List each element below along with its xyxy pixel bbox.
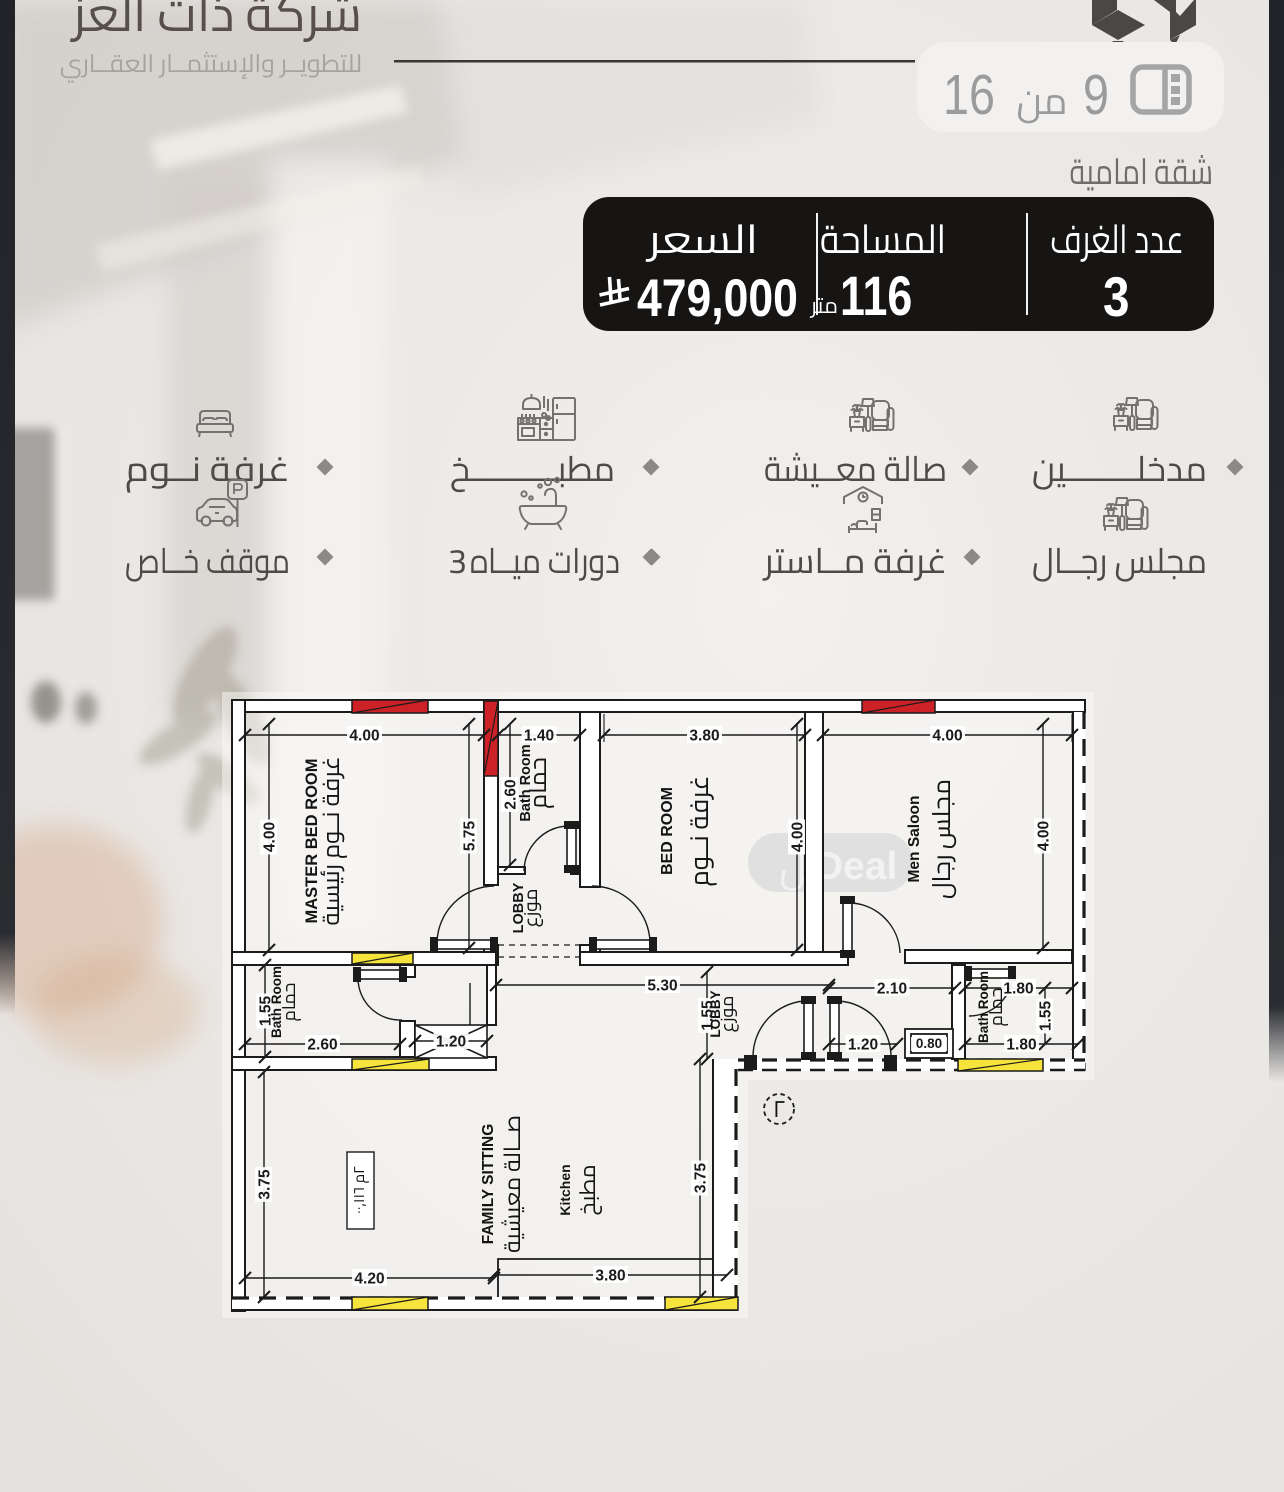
svg-text:3.80: 3.80 [689,728,719,745]
svg-text:4.00: 4.00 [932,728,962,745]
svg-text:2.10: 2.10 [877,981,907,998]
svg-text:BED ROOM: BED ROOM [659,787,676,875]
svg-text:LOBBY: LOBBY [511,882,527,933]
svg-text:1.80: 1.80 [1003,981,1033,998]
svg-text:1.20: 1.20 [848,1037,878,1054]
svg-text:MASTER BED ROOM: MASTER BED ROOM [303,759,321,924]
svg-text:5.30: 5.30 [647,978,677,995]
svg-text:1.20: 1.20 [436,1034,466,1051]
svg-text:4.20: 4.20 [354,1271,384,1288]
svg-text:Bath Room: Bath Room [269,966,284,1038]
svg-text:2.60: 2.60 [503,779,520,809]
svg-text:1.80: 1.80 [1006,1037,1036,1054]
svg-text:3.80: 3.80 [595,1268,625,1285]
svg-text:Kitchen: Kitchen [557,1164,573,1215]
svg-text:2.60: 2.60 [307,1037,337,1054]
svg-text:FAMILY SITTING: FAMILY SITTING [480,1124,497,1245]
svg-text:5.75: 5.75 [462,821,479,852]
svg-text:16: 16 [943,64,995,127]
svg-text:Men Saloon: Men Saloon [906,796,923,883]
svg-text:3.75: 3.75 [693,1163,710,1194]
svg-text:9: 9 [1083,64,1109,127]
svg-text:0.80: 0.80 [916,1036,942,1051]
svg-text:1.40: 1.40 [524,728,554,745]
svg-text:4.00: 4.00 [262,822,279,852]
svg-text:Bath Room: Bath Room [518,744,534,821]
svg-text:Bath Room: Bath Room [976,971,991,1043]
svg-text:479,000: 479,000 [637,269,798,327]
svg-text:116: 116 [840,264,912,327]
svg-text:4.00: 4.00 [1036,821,1053,851]
svg-text:4.00: 4.00 [349,728,379,745]
svg-text:LOBBY: LOBBY [708,990,723,1037]
svg-text:3.75: 3.75 [257,1169,274,1200]
svg-text:1.55: 1.55 [1038,1001,1055,1032]
svg-text:3: 3 [1103,266,1129,328]
svg-text:4.00: 4.00 [790,822,807,852]
